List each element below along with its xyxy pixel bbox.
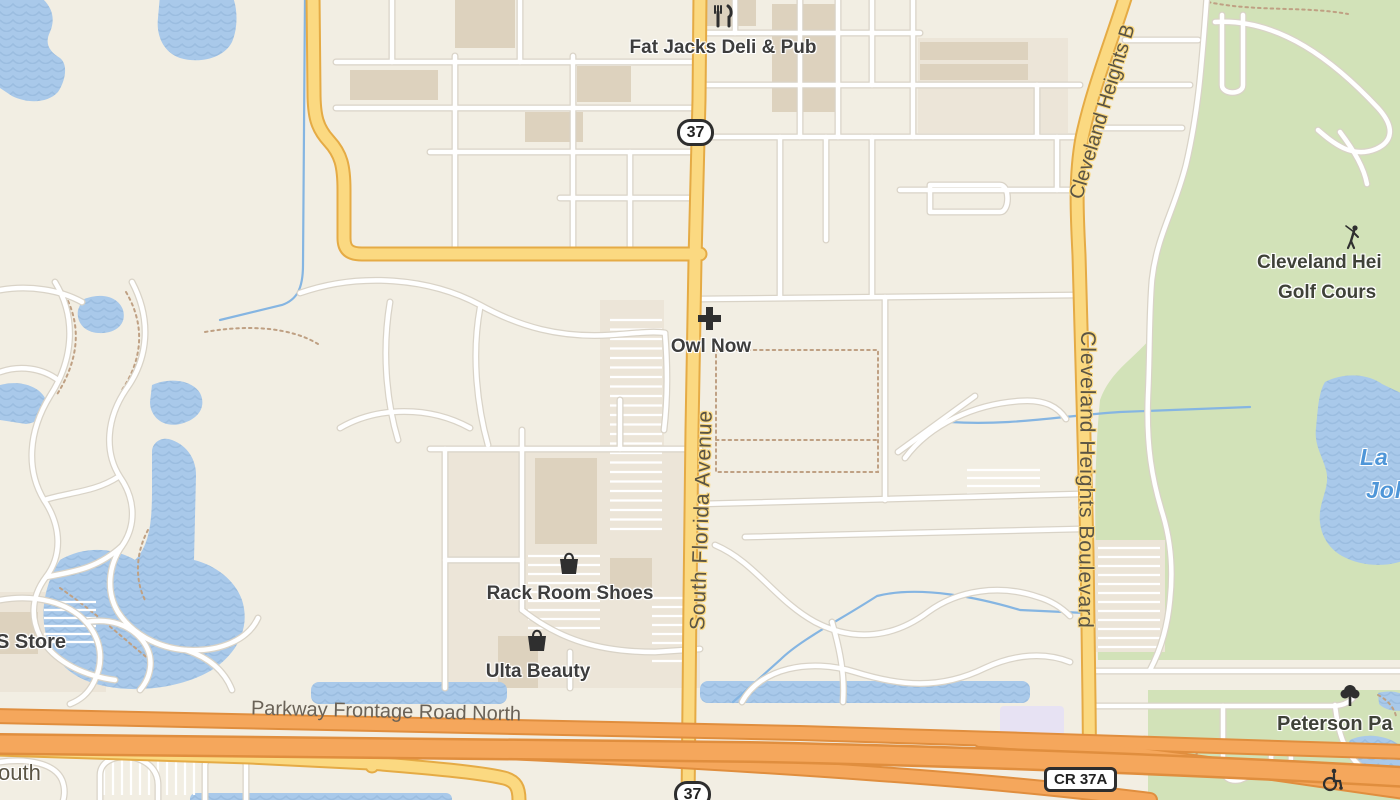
poi-label-owl-now[interactable]: Owl Now bbox=[671, 336, 751, 358]
area-label-golf-line1: Cleveland Hei bbox=[1257, 252, 1382, 274]
route-shield-cr-37a-text: CR 37A bbox=[1054, 771, 1107, 788]
water-label-lake-line1: La bbox=[1360, 444, 1389, 471]
area-label-peterson-park: Peterson Pa bbox=[1277, 713, 1393, 736]
area-label-golf-line2: Golf Cours bbox=[1278, 282, 1376, 304]
water-label-lake-line2: Joh bbox=[1366, 477, 1400, 504]
route-shield-37-north-text: 37 bbox=[687, 124, 705, 142]
poi-label-rack-room-shoes[interactable]: Rack Room Shoes bbox=[487, 583, 654, 605]
street-label-frontage-south-partial: outh bbox=[0, 760, 41, 786]
route-shield-37-north: 37 bbox=[677, 119, 714, 146]
poi-label-s-store[interactable]: S Store bbox=[0, 631, 66, 654]
route-shield-37-south-text: 37 bbox=[684, 786, 702, 800]
route-shield-37-south: 37 bbox=[674, 781, 711, 800]
map-canvas[interactable]: Fat Jacks Deli & Pub Owl Now Rack Room S… bbox=[0, 0, 1400, 800]
poi-label-fat-jacks[interactable]: Fat Jacks Deli & Pub bbox=[630, 37, 817, 59]
route-shield-cr-37a: CR 37A bbox=[1044, 767, 1117, 792]
street-label-cleveland-heights-boulevard: Cleveland Heights Boulevard bbox=[1073, 331, 1100, 629]
poi-label-ulta-beauty[interactable]: Ulta Beauty bbox=[486, 661, 591, 683]
